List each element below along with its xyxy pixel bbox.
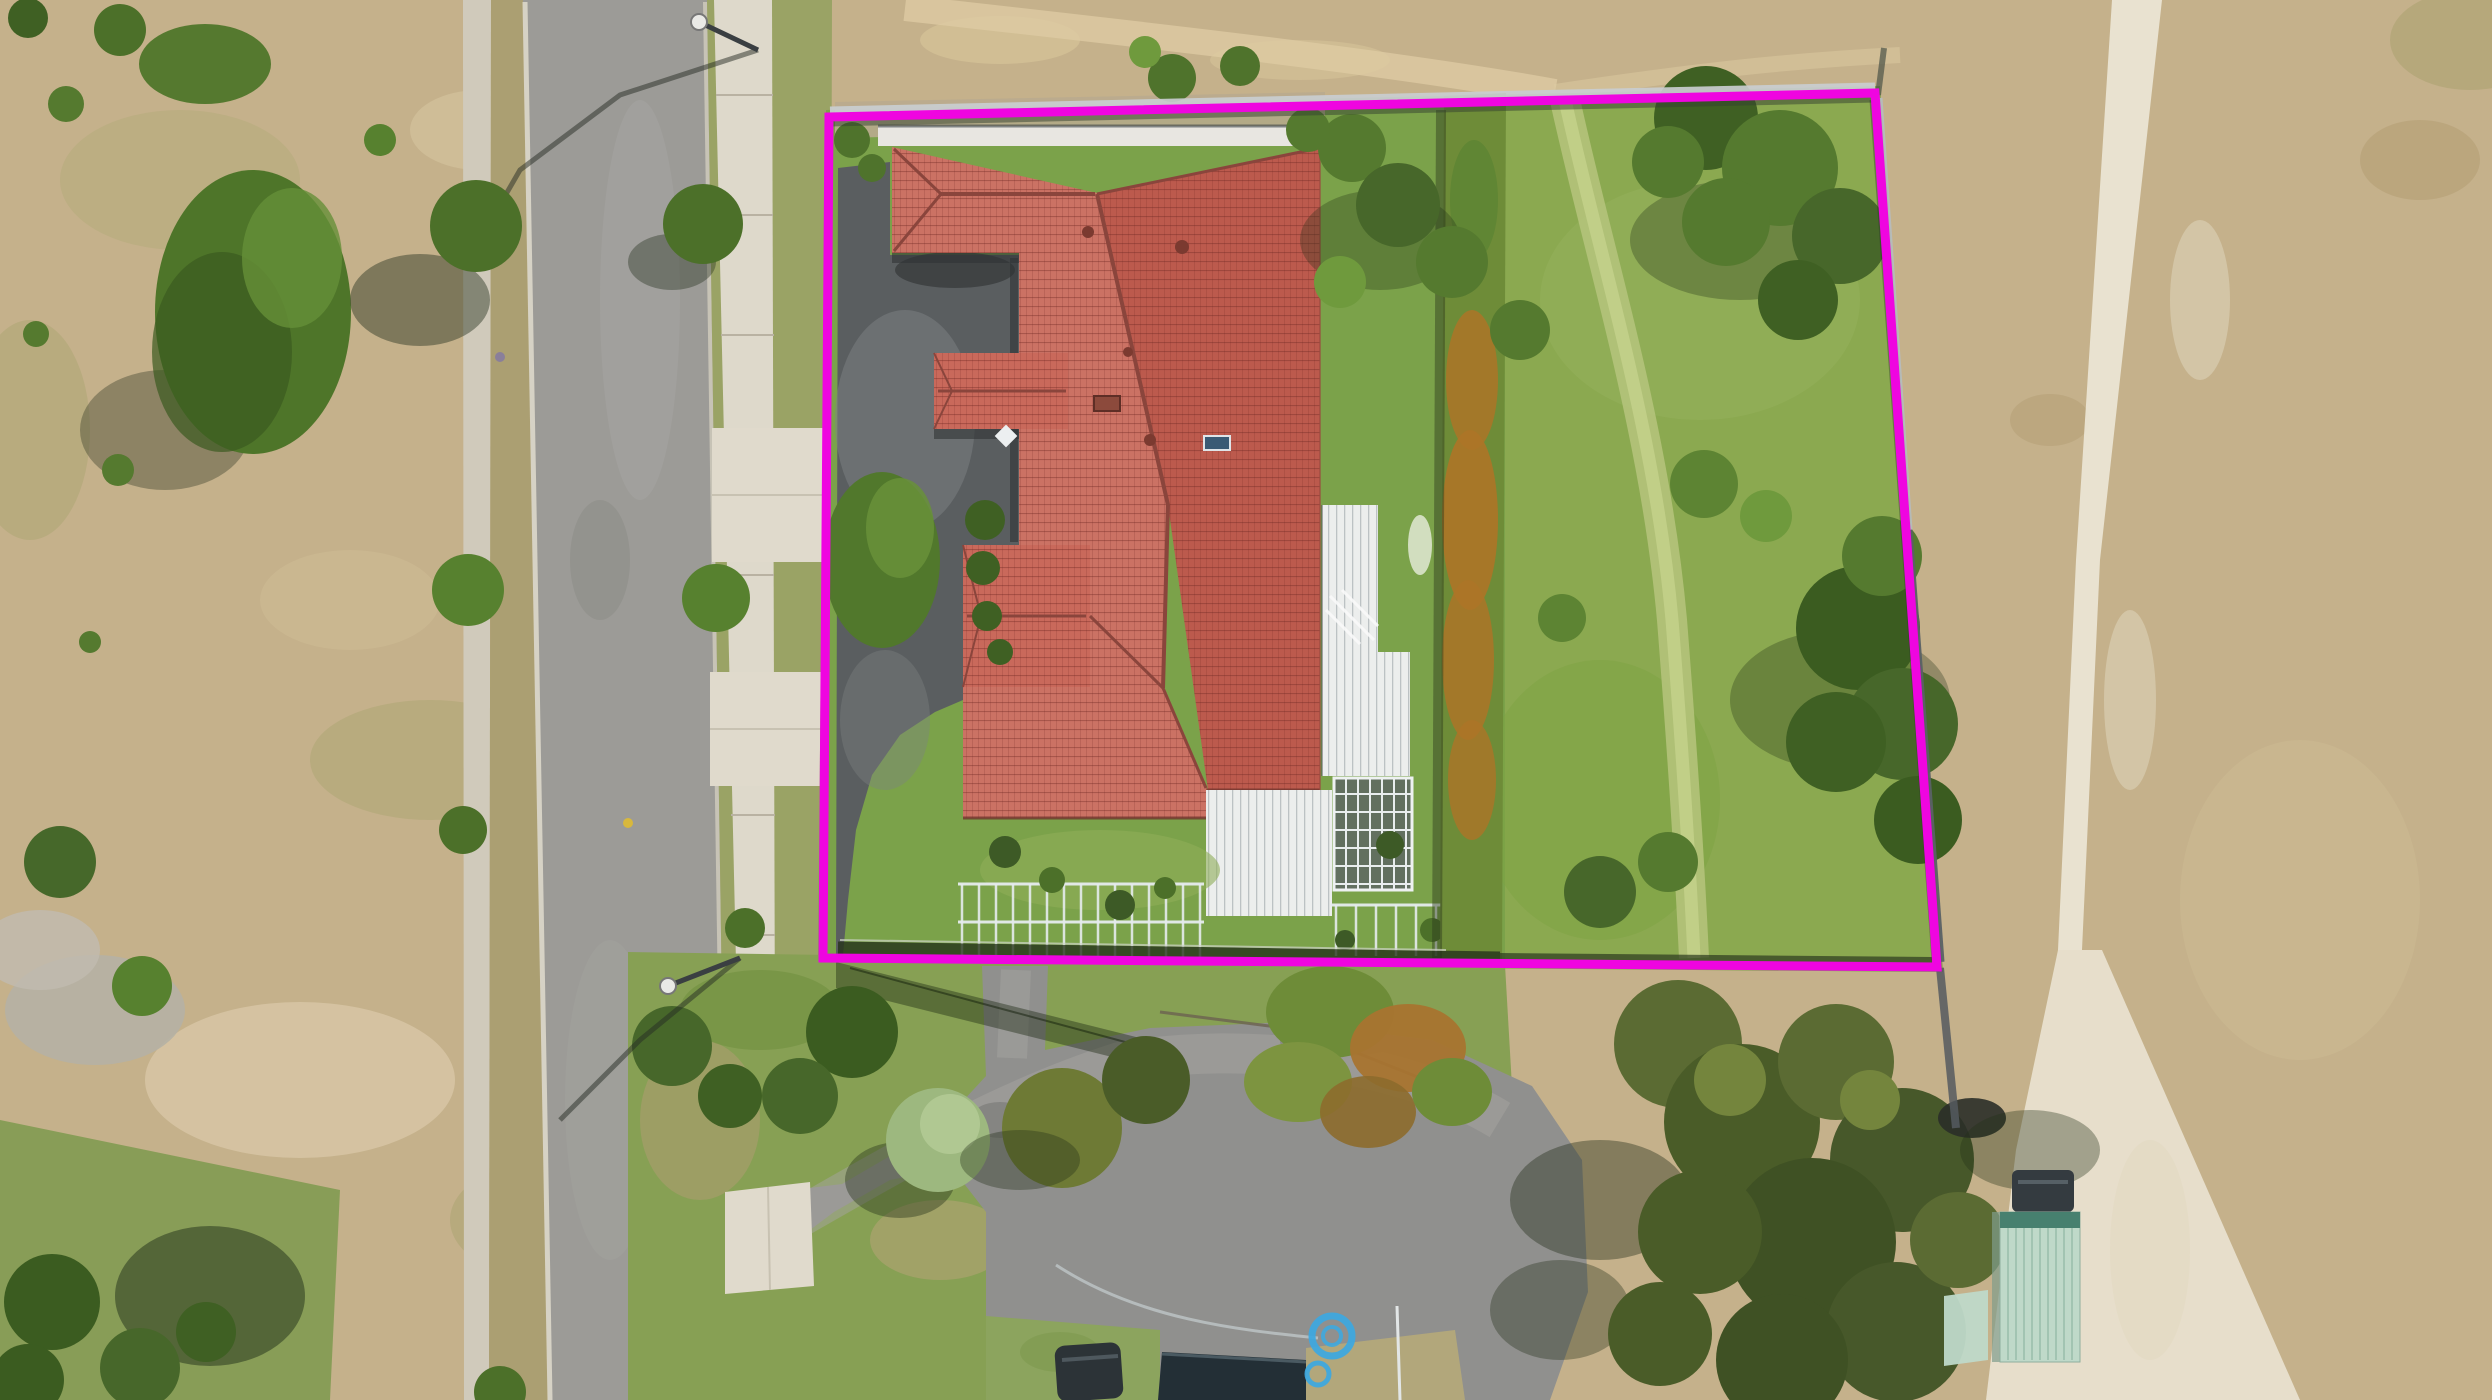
shed-roof-edge [2000,1212,2080,1228]
house-north-wall [878,126,1326,146]
roof-vent [1123,347,1133,357]
streetlight-lamp [691,14,707,30]
roof-vent [1082,226,1094,238]
white-flower-bed [1408,515,1432,575]
south-grounds [560,952,2100,1400]
parked-suv [1054,1342,1124,1400]
conservatory [1334,778,1412,890]
skylight [1204,436,1230,450]
parked-car-shed [2012,1170,2074,1212]
chimney [1094,396,1120,411]
aerial-photo [0,0,2492,1400]
streetlight-lamp [660,978,676,994]
second-shed [1944,1290,1988,1366]
pedestrian [495,352,505,362]
roof-vent [1144,434,1156,446]
road-marking [623,818,633,828]
roof-vent [1175,240,1189,254]
scene-canvas [0,0,2492,1400]
